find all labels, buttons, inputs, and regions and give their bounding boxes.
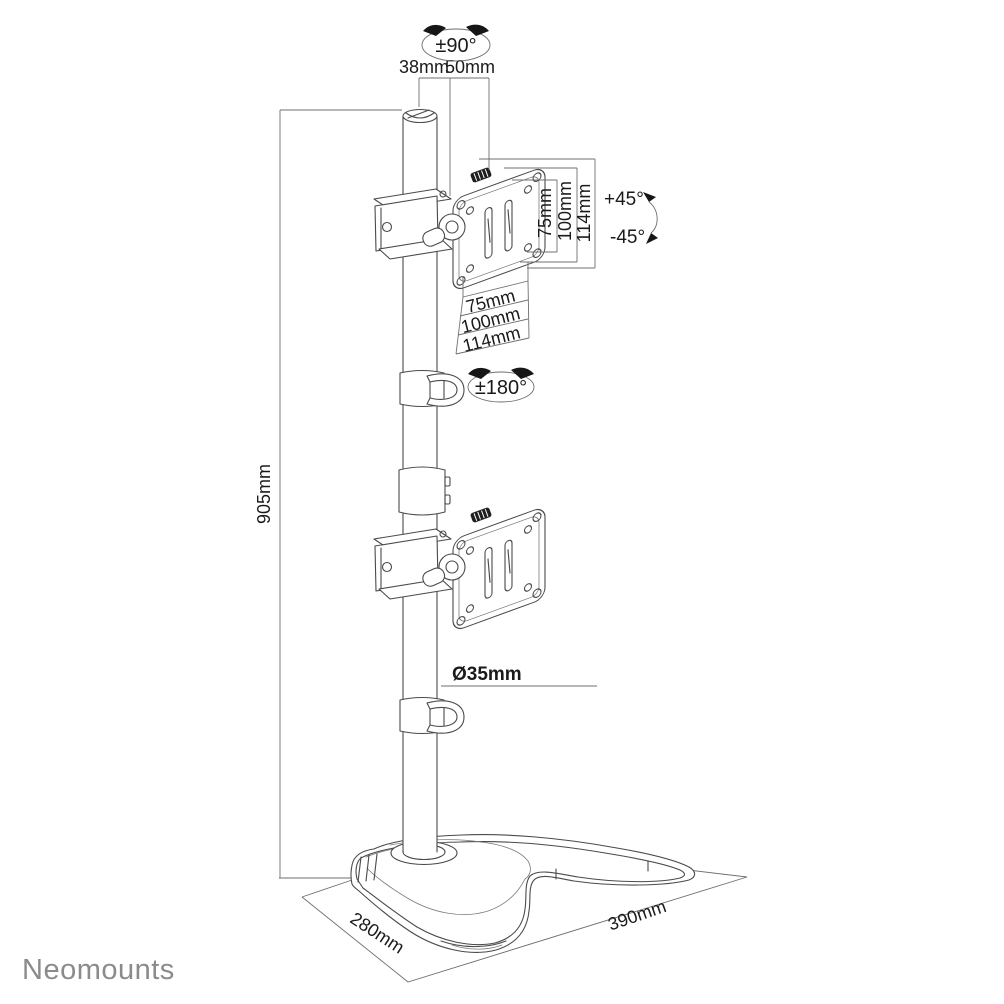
diagram-stage: 280mm 390mm — [0, 0, 1004, 1004]
label-pole-top-width: 38mm — [399, 57, 449, 77]
monitor-stand-diagram: 280mm 390mm — [0, 0, 1004, 1004]
tilt-down-arrow-icon — [646, 233, 658, 244]
neomounts-logo: Neomounts — [22, 954, 175, 987]
label-vesa-vertical-100: 100mm — [555, 181, 575, 241]
label-vesa-vertical-75: 75mm — [535, 188, 555, 238]
label-pole-height: 905mm — [254, 464, 274, 524]
mount-assembly-top — [374, 166, 545, 291]
rotation-vesa-badge: ±180° — [468, 368, 534, 402]
label-rotation-pivot: ±90° — [435, 35, 476, 57]
tilt-dimension: +45° -45° — [604, 189, 658, 248]
cable-clip-lower — [400, 698, 464, 734]
cable-clip-upper — [400, 371, 464, 407]
label-pole-diameter: Ø35mm — [452, 664, 522, 685]
tilt-up-arrow-icon — [643, 192, 656, 202]
rotation-pivot-badge: ±90° — [422, 25, 490, 61]
label-tilt-down: -45° — [610, 227, 645, 248]
label-rotation-vesa: ±180° — [475, 377, 527, 399]
height-sleeve — [399, 467, 450, 515]
label-vesa-vertical-114: 114mm — [574, 184, 594, 243]
label-tilt-up: +45° — [604, 189, 644, 210]
mount-assembly-bottom — [374, 506, 545, 631]
label-base-width: 390mm — [605, 896, 668, 934]
pole-diameter-dimension: Ø35mm — [441, 664, 597, 686]
